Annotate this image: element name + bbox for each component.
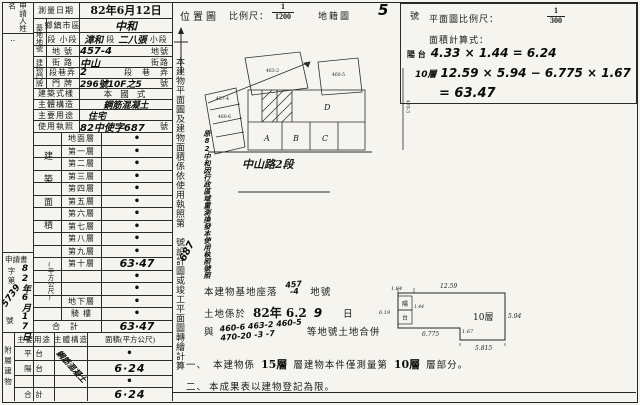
note1-number: 一、 [186, 357, 207, 371]
scale-denominator: 1200 [272, 12, 294, 22]
cadastral-sheet-number: 5 [378, 1, 388, 19]
dim-top-left: 1.84 [391, 286, 402, 292]
floor-value: • [134, 271, 140, 282]
floor-label: 第一層 [62, 146, 102, 158]
floor-value: • [134, 158, 140, 169]
license-unit: 號 [160, 121, 172, 132]
street-unit: 街路 [151, 57, 172, 68]
basement-value: • [134, 296, 140, 307]
floor-value: • [134, 133, 140, 144]
dim-notch-width: 6.775 [422, 331, 439, 338]
section-label: 段 小段 [46, 33, 80, 45]
arcade-value: • [134, 308, 140, 319]
floor-plan-sketch: 1.84 12.59 6.19 5.94 6.775 1.67 5.815 1.… [378, 272, 588, 357]
section-value: 漳和 [84, 32, 103, 46]
floor-value: • [134, 196, 140, 207]
floor-value: • [134, 146, 140, 157]
dim-right: 5.94 [508, 313, 522, 320]
lane-label: 段巷弄 [46, 68, 80, 78]
survey-date-row: 測量日期 82年6月12日 [33, 2, 172, 19]
dim-left: 6.19 [379, 310, 391, 316]
floor-value: • [134, 246, 140, 257]
floor-value: • [134, 171, 140, 182]
application-date: 82年6月17日 [19, 264, 32, 330]
annex-table: 主要用途 主體構造 面積(平方公尺) 平 台 • 陽 台 6·24 • 合 計 … [14, 333, 172, 401]
section-row: 段 小段 漳和 段 二八張 小段 [33, 33, 172, 46]
survey-result-form: 申請人姓名 ‥ 測量日期 82年6月12日 鄉鎮市區 中和 段 小段 漳和 段 … [0, 0, 640, 405]
dim-bottom: 5.815 [475, 345, 492, 352]
merge1-lot-bottom: -4 [289, 288, 299, 296]
usage-label: 主要用途 [33, 110, 80, 120]
annex-area: • [88, 347, 172, 360]
applicant-label: 申請人姓名 [7, 2, 29, 33]
annex-row-balcony: 陽 台 6·24 [14, 361, 172, 376]
annex-use: 平 台 [14, 347, 55, 360]
location-map-title: 位置圖 [180, 8, 219, 23]
formula-floor10-prefix: 10層 [415, 67, 437, 80]
merge-note-line1: 本建物基地座落 457 -4 地號 [204, 284, 331, 298]
parcel-d-label: D [323, 103, 331, 112]
applicant-box: 申請人姓名 [2, 2, 33, 34]
note2-text: 本成果表以建物登記為限。 [209, 379, 335, 393]
floor-label: 第六層 [62, 208, 102, 220]
annex-balcony-area: 6·24 [88, 361, 172, 375]
license-value: 82中使字687 [80, 119, 145, 134]
merge3-printed: 與 [204, 324, 215, 338]
tiny-parcel-number: 460-6 [218, 114, 231, 120]
subsection-value: 二八張 [118, 32, 147, 46]
address-group-label: 建物門牌 [33, 57, 47, 89]
road-name-label: 中山路2段 [242, 158, 296, 171]
merge2-date-handwriting: 9 [314, 306, 322, 320]
floor-label [62, 283, 102, 295]
floor-value: • [134, 233, 140, 244]
annex-use: 陽 台 [14, 361, 55, 375]
merge3-suffix: 等地號土地合併 [307, 324, 381, 338]
floor-area-group: 建築面積 (平方公尺) [33, 133, 62, 321]
annex-header-row: 主要用途 主體構造 面積(平方公尺) [14, 333, 172, 347]
balcony-char-2: 台 [402, 314, 408, 322]
note1-stamp-10f: 10層 [394, 356, 420, 372]
floor-total-row: 合 計63·47 [33, 321, 172, 334]
note-1: 一、 本建物係 15層 層建物本件僅測量第 10層 層部分。 [186, 356, 468, 372]
note1-text-b: 層建物本件僅測量第 [293, 357, 388, 371]
formula-line-floor10: 10層 12.59 × 5.94 − 6.775 × 1.67 [415, 66, 631, 80]
floor-label: 第三層 [62, 171, 102, 183]
floor-label [62, 271, 102, 283]
plan-scale-denominator: 300 [547, 16, 565, 26]
location-scale-fraction: 1 1200 [272, 3, 294, 22]
balcony-char-1: 陽 [402, 300, 408, 308]
dim-notch-height: 1.67 [462, 329, 474, 335]
merge3-lots-handwriting: 460-6 463-2 460-5 470-20 -3 -7 [219, 318, 303, 343]
subsection-word: 小段 [150, 34, 168, 45]
formula-floor10-expression: 12.59 × 5.94 − 6.775 × 1.67 [441, 66, 631, 80]
arcade-label: 騎 樓 [62, 308, 102, 320]
floor-label: 第九層 [62, 246, 102, 258]
floor10-area-value: 63·47 [120, 257, 155, 270]
formula-balcony-expression: 4.33 × 1.44 = 6.24 [431, 46, 557, 60]
annex-use-header: 主要用途 [14, 333, 55, 346]
tiny-parcel-number: 460-5 [332, 72, 345, 78]
floor-label: 第五層 [62, 196, 102, 208]
floor-label: 第二層 [62, 158, 102, 170]
building-style-label: 建築式樣 [33, 89, 80, 99]
plan-scale-numerator: 1 [554, 7, 558, 16]
parcel-b-label: B [292, 134, 299, 143]
floor-value: • [134, 283, 140, 294]
merge1-printed: 本建物基地座落 [204, 284, 278, 298]
annex-area: • [88, 376, 172, 387]
section-word: 段 [106, 34, 115, 45]
lot-number-label: 地 號 [46, 46, 80, 56]
source-statement: 本建物平面圖及建物面積係依使用執照第 號設計圖或竣工平面圖轉繪計算 [174, 57, 187, 395]
scale-label: 比例尺： [229, 9, 269, 22]
dim-balcony: 1.44 [414, 304, 424, 310]
north-arrow-icon [173, 26, 189, 78]
floor-total-label: 合 計 [33, 321, 102, 333]
ink-smudge: ‥ [10, 34, 15, 43]
floor-label: 地面層 [62, 133, 102, 145]
structure-label: 主體構造 [33, 100, 80, 110]
basement-label: 地下層 [62, 296, 102, 308]
annex-structure-header: 主體構造 [55, 333, 88, 346]
floor-value: • [134, 183, 140, 194]
plan-scale-label: 平面圖比例尺： [429, 12, 499, 25]
floor-label: 第十層 [62, 258, 102, 270]
license-row: 使用執照 82中使字687 號 [33, 121, 172, 133]
annex-area-header: 面積(平方公尺) [88, 333, 172, 346]
floor-total-value: 63·47 [120, 320, 155, 333]
plan-scale-fraction: 1 300 [547, 7, 565, 26]
area-formula-box: 平面圖比例尺： 1 300 面積計算式： 陽 台 4.33 × 1.44 = 6… [400, 3, 637, 104]
formula-result: = 63.47 [439, 86, 496, 101]
annex-row-blank: • [14, 376, 172, 388]
note2-number: 二、 [186, 379, 207, 393]
application-box: 申請書 82年6月17日 字第 5739 號 [2, 252, 33, 333]
floor-label: 第四層 [62, 183, 102, 195]
note1-stamp-15f: 15層 [261, 356, 287, 372]
formula-balcony-prefix: 陽 台 [407, 49, 426, 60]
parcel-a-label: A [263, 134, 270, 143]
license-label: 使用執照 [33, 121, 80, 132]
annex-total-label: 合 計 [14, 388, 55, 401]
site-map: A B C D 457-4 460-6 463-2 460-5 470-3 中山… [196, 40, 431, 255]
note-2: 二、 本成果表以建物登記為限。 [186, 379, 335, 393]
annex-row-total: 合 計 6·24 [14, 388, 172, 401]
parcel-c-label: C [322, 134, 328, 143]
merge2-day-label: 日 [343, 306, 354, 320]
merge-note-line3: 與 460-6 463-2 460-5 470-20 -3 -7 等地號土地合併 [204, 322, 380, 340]
floor-area-group-label: 建築面積 [42, 151, 55, 271]
annex-total-area: 6·24 [88, 388, 172, 401]
merge1-lot-handwriting: 457 -4 [284, 280, 302, 296]
note1-text-c: 層部分。 [426, 357, 468, 371]
room-label: 10層 [473, 312, 493, 323]
annex-use [14, 376, 55, 387]
site-group-label: 基地地號 [33, 19, 47, 57]
merge2-printed: 土地係於 [204, 306, 246, 320]
formula-line-balcony: 陽 台 4.33 × 1.44 = 6.24 [407, 46, 556, 60]
street-label: 街 路 [46, 57, 80, 67]
merge1-unit: 地號 [310, 284, 331, 298]
tiny-parcel-number: 457-4 [216, 96, 229, 102]
application-number-suffix: 號 [6, 315, 15, 326]
house-number-label: 門 牌 [46, 79, 80, 89]
floor-area-unit-label: (平方公尺) [44, 261, 54, 319]
survey-date-label: 測量日期 [33, 2, 80, 18]
floor-label: 第八層 [62, 233, 102, 245]
district-label: 鄉鎮市區 [46, 19, 80, 32]
floor-value: • [134, 221, 140, 232]
cadastral-map-label: 地籍圖 [318, 9, 351, 22]
note1-text-a: 本建物係 [213, 357, 255, 371]
dim-top: 12.59 [440, 283, 457, 290]
district-row: 鄉鎮市區 中和 [33, 19, 172, 33]
formula-label: 面積計算式： [429, 33, 489, 46]
floor-label: 第七層 [62, 221, 102, 233]
annex-row-platform: 平 台 • [14, 347, 172, 361]
tiny-parcel-number: 463-2 [266, 68, 279, 74]
floor-value: • [134, 208, 140, 219]
scale-numerator: 1 [281, 3, 285, 12]
survey-date-value: 82年6月12日 [90, 2, 161, 18]
